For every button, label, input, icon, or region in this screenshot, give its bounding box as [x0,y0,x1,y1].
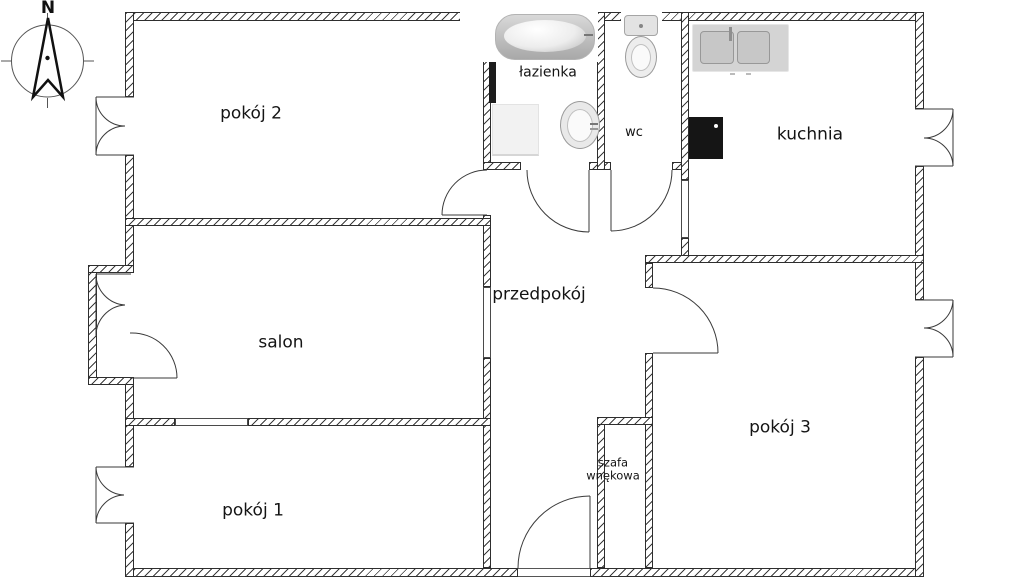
window-pokoj2 [96,97,134,155]
balcony-wall-top [88,265,134,273]
wall-outer-right-3 [915,357,924,577]
bathroom-radiator [489,62,496,103]
wall-bath-bottom-a [483,162,521,170]
compass-rose: N [1,0,94,108]
kitchen-stove [689,117,723,159]
wall-outer-left-2 [125,155,134,267]
door-pokoj1-closed [175,418,248,426]
bathtub-faucet [584,34,593,36]
kitchen-sink-faucet [729,27,732,41]
washing-machine [492,104,539,156]
room-label-przedpokoj: przedpokój [492,286,586,305]
room-label-pokoj3: pokój 3 [749,419,811,438]
compass-north-label: N [41,0,55,18]
wall-outer-right-1 [915,12,924,109]
wall-salon-pokoj1-a [125,418,175,426]
kitchen-sink-basin-right [737,31,770,64]
wall-outer-right-2 [915,166,924,300]
wall-kitchen-pokoj3 [645,255,924,263]
kitchen-stove-knob [714,124,718,128]
floor-plan: N [0,0,1024,580]
door-pokoj2 [442,170,487,215]
door-entrance [518,496,590,568]
wall-kitchen-left-1 [681,12,689,180]
wall-closet-left [597,417,605,568]
door-lazienka [527,170,589,232]
compass-circle [12,25,84,97]
room-label-szafa: szafa wnękowa [586,456,640,481]
room-label-szafa-line2: wnękowa [586,469,640,482]
room-label-wc: wc [625,126,643,140]
door-wc [611,170,672,231]
wall-pokoj2-salon [125,218,491,226]
balcony-wall-outer [88,265,97,385]
room-label-lazienka: łazienka [519,65,577,80]
balcony-wall-bottom [88,377,134,385]
toilet-bowl-inner [631,44,651,71]
room-label-salon: salon [258,334,303,353]
wall-outer-bottom-right [590,568,924,577]
bathroom-sink-tap2 [590,128,598,130]
door-kitchen-closed [681,180,689,238]
window-kuchnia [915,109,953,166]
bathroom-sink-basin [567,109,593,142]
bathtub-basin [504,20,586,52]
room-label-szafa-line1: szafa [586,456,640,469]
wall-hall-left-3 [483,358,491,568]
window-pokoj1 [96,467,134,523]
wall-outer-left-4 [125,523,134,577]
door-pokoj3 [653,288,718,353]
wall-bathroom-wc [597,12,605,170]
wall-outer-left-1 [125,12,134,97]
kitchen-sink-mark-2 [746,73,751,75]
window-pokoj3 [915,300,953,357]
entrance-threshold [518,568,590,577]
bathroom-sink-tap [590,123,598,125]
wall-pokoj3-left-1 [645,263,653,288]
wall-closet-top [597,417,653,425]
door-salon-closed [483,287,491,358]
room-label-pokoj1: pokój 1 [222,502,284,521]
kitchen-sink-mark-1 [730,73,735,75]
wall-outer-bottom-left [125,568,518,577]
room-label-pokoj2: pokój 2 [220,105,282,124]
compass-pivot [45,56,49,60]
compass-needle [33,18,63,97]
toilet-tank-button [639,24,643,28]
wall-salon-pokoj1-b [248,418,491,426]
wall-pokoj3-left-2 [645,353,653,568]
window-balcony [96,274,131,336]
door-balcony [130,333,177,378]
room-label-kuchnia: kuchnia [777,126,843,145]
